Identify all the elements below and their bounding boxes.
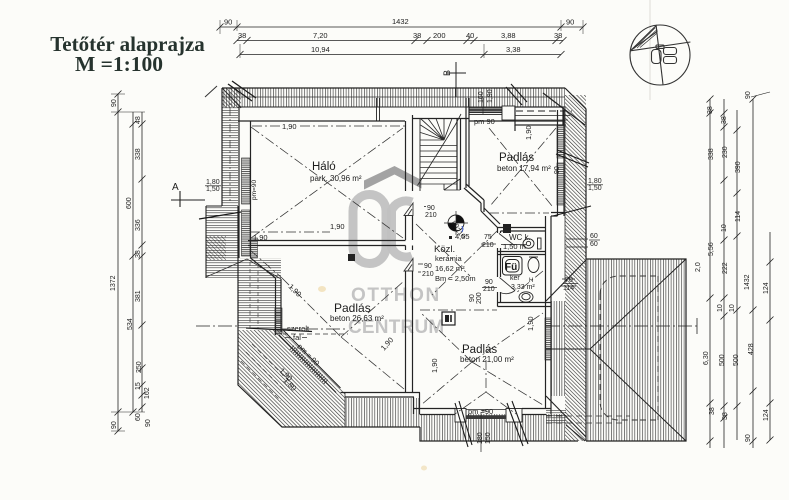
svg-text:M =1:100: M =1:100 [75, 52, 163, 76]
svg-text:1,90: 1,90 [430, 358, 439, 373]
svg-text:Padlás: Padlás [334, 301, 371, 315]
svg-text:38: 38 [721, 116, 728, 124]
svg-text:160: 160 [478, 91, 485, 103]
svg-text:336: 336 [135, 219, 142, 231]
svg-text:230: 230 [722, 146, 729, 158]
svg-text:1,90: 1,90 [282, 122, 297, 131]
svg-text:1,90: 1,90 [330, 222, 345, 231]
svg-text:WC k.: WC k. [509, 233, 531, 242]
svg-text:3,88: 3,88 [501, 31, 516, 40]
svg-text:210: 210 [422, 271, 434, 278]
svg-text:200: 200 [433, 31, 446, 40]
svg-text:pm 90: pm 90 [474, 117, 495, 126]
svg-text:90: 90 [424, 263, 432, 270]
svg-text:90: 90 [745, 434, 752, 442]
svg-text:38: 38 [554, 31, 562, 40]
svg-text:162: 162 [144, 387, 151, 399]
svg-text:5,56: 5,56 [708, 242, 715, 256]
svg-text:park. 30,96 m²: park. 30,96 m² [310, 174, 362, 183]
svg-text:10,94: 10,94 [311, 45, 330, 54]
svg-text:38: 38 [707, 106, 714, 114]
svg-text:H: H [529, 278, 533, 284]
svg-text:pm=90: pm=90 [251, 180, 258, 200]
svg-text:16,62 m²: 16,62 m² [435, 264, 465, 273]
svg-text:7,20: 7,20 [313, 31, 328, 40]
svg-text:60: 60 [135, 413, 142, 421]
svg-text:1,50: 1,50 [588, 185, 602, 192]
svg-text:1,80: 1,80 [588, 178, 602, 185]
svg-text:38: 38 [413, 31, 421, 40]
svg-text:40: 40 [466, 31, 474, 40]
svg-text:150: 150 [485, 432, 492, 444]
svg-text:10: 10 [717, 304, 724, 312]
svg-text:38: 38 [135, 250, 142, 258]
svg-text:338: 338 [708, 148, 715, 160]
svg-text:124: 124 [763, 282, 770, 294]
svg-text:beton 26,63 m²: beton 26,63 m² [330, 314, 384, 323]
svg-text:A: A [172, 182, 179, 193]
svg-text:222: 222 [722, 262, 729, 274]
svg-text:Háló: Háló [312, 161, 336, 173]
svg-text:600: 600 [126, 197, 133, 209]
svg-text:338: 338 [135, 148, 142, 160]
svg-text:534: 534 [127, 318, 134, 330]
svg-text:1,90: 1,90 [287, 282, 304, 299]
svg-text:381: 381 [135, 290, 142, 302]
svg-text:500: 500 [733, 354, 740, 366]
svg-text:90: 90 [224, 18, 232, 27]
svg-text:90: 90 [469, 294, 476, 302]
svg-text:90: 90 [485, 279, 493, 286]
svg-text:210: 210 [425, 212, 437, 219]
svg-text:90: 90 [566, 18, 574, 27]
svg-text:250: 250 [136, 361, 143, 373]
svg-text:10: 10 [721, 224, 728, 232]
svg-text:70: 70 [565, 277, 573, 284]
svg-text:200: 200 [476, 292, 483, 304]
svg-text:2,0: 2,0 [695, 262, 702, 272]
svg-text:90: 90 [111, 421, 118, 429]
svg-text:114: 114 [735, 211, 742, 222]
svg-text:90: 90 [554, 166, 561, 174]
svg-text:Fü: Fü [505, 262, 517, 273]
svg-text:500: 500 [719, 354, 726, 366]
svg-text:390: 390 [735, 161, 742, 173]
svg-text:1,90: 1,90 [253, 233, 268, 242]
svg-text:75: 75 [484, 234, 492, 241]
svg-text:180: 180 [477, 432, 484, 444]
svg-text:90: 90 [427, 205, 435, 212]
svg-text:38: 38 [722, 412, 729, 420]
svg-text:60: 60 [590, 241, 598, 248]
svg-text:1,90: 1,90 [526, 316, 535, 331]
svg-text:beton 21,00 m²: beton 21,00 m² [460, 355, 514, 364]
svg-text:1,50 m: 1,50 m [503, 242, 526, 251]
svg-text:1,50: 1,50 [206, 186, 220, 193]
svg-text:210: 210 [482, 242, 494, 249]
svg-text:60: 60 [590, 233, 598, 240]
svg-text:15: 15 [135, 382, 142, 390]
svg-text:3,38: 3,38 [506, 45, 521, 54]
svg-text:6,30: 6,30 [703, 351, 710, 365]
svg-text:90: 90 [111, 99, 118, 107]
svg-text:428: 428 [748, 343, 755, 355]
svg-text:90: 90 [745, 91, 752, 99]
svg-text:1432: 1432 [744, 274, 751, 290]
svg-text:38: 38 [709, 407, 716, 415]
svg-text:124: 124 [763, 409, 770, 421]
svg-text:1,90: 1,90 [487, 89, 494, 103]
svg-text:1,90: 1,90 [524, 125, 533, 140]
svg-text:1432: 1432 [392, 17, 409, 26]
svg-text:10: 10 [729, 304, 736, 312]
svg-text:ker: ker [510, 275, 520, 282]
svg-text:48: 48 [135, 116, 142, 124]
svg-text:90: 90 [145, 419, 152, 427]
svg-text:pm =90: pm =90 [468, 407, 493, 416]
svg-text:1,80: 1,80 [206, 179, 220, 186]
svg-text:1372: 1372 [110, 275, 117, 291]
svg-text:38: 38 [238, 31, 246, 40]
svg-text:210: 210 [483, 286, 495, 293]
